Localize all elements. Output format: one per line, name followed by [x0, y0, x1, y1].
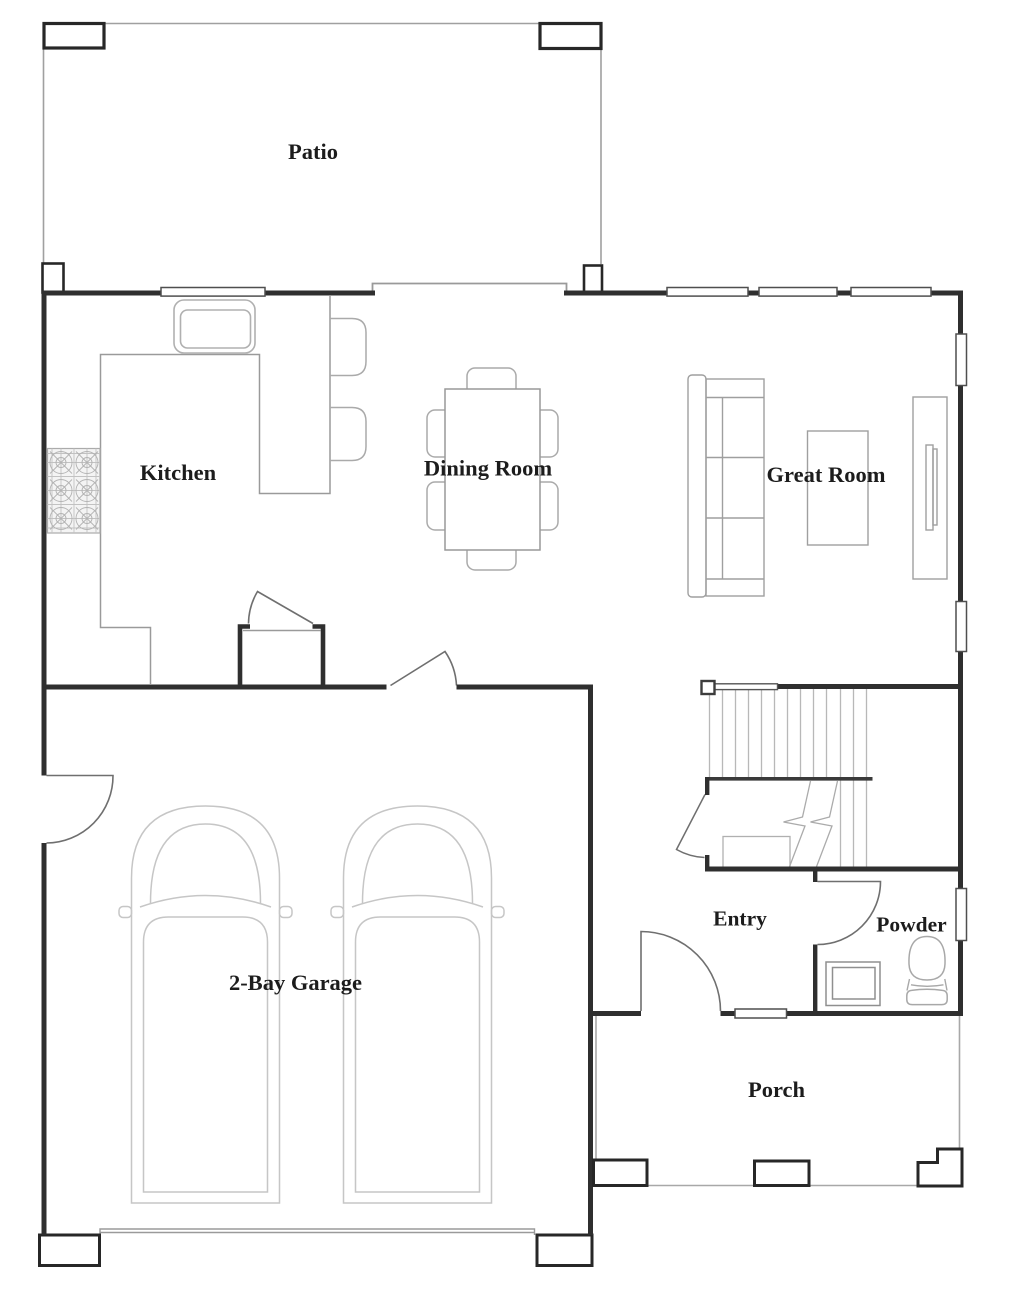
svg-text:Dining Room: Dining Room [424, 456, 552, 481]
svg-text:Powder: Powder [876, 913, 947, 937]
svg-text:Great Room: Great Room [767, 462, 886, 487]
svg-text:Entry: Entry [713, 907, 767, 931]
svg-text:Patio: Patio [288, 139, 338, 164]
svg-text:Kitchen: Kitchen [140, 460, 217, 485]
svg-text:2-Bay Garage: 2-Bay Garage [229, 970, 362, 995]
svg-text:Porch: Porch [748, 1077, 806, 1102]
